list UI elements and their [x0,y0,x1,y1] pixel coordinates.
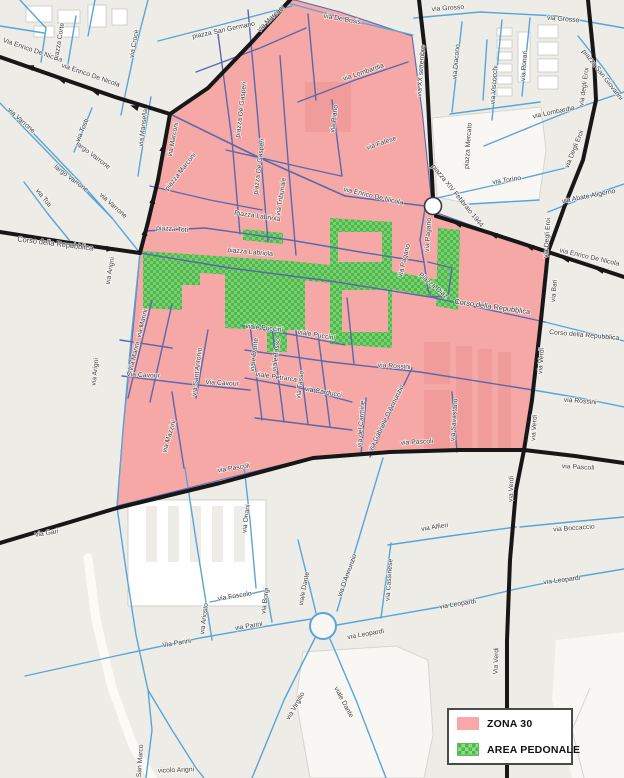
street-label: piazza Corte [53,22,67,61]
legend-item-area-pedonale: AREA PEDONALE [457,743,563,756]
street-label: via Verdi [537,347,546,374]
map-page: { "legend": { "items": [ {"label": "ZONA… [0,0,624,778]
street-label: via Varrone [98,192,128,220]
street-label: via Viscocchi [490,65,500,105]
zona30-swatch-icon [457,717,479,730]
street-label: via Varrone [6,107,36,135]
street-label: vicolo Arigni [158,766,195,774]
map-svg: Via Enrico De Nicolavia Enrico De Nicola… [0,0,624,778]
street-label: via Enrico De Nicola [60,62,120,89]
building [538,42,558,55]
building [497,64,512,72]
street-label: via Grosso [547,15,580,25]
street-label: via Grosso [431,4,464,13]
building [497,76,512,84]
street-label: via Leopardi [543,575,581,587]
street-label: Corso della Repubblica [549,329,620,342]
courtyard [212,506,223,562]
courtyard [146,506,157,562]
street-label: largo Varrone [75,141,112,171]
street-label: via Leopardi [439,598,477,611]
legend-label-zona30: ZONA 30 [487,718,532,730]
street-label: via Mansella [138,108,150,147]
building-pink [478,349,492,448]
street-label: via Pascoli [562,463,595,472]
street-label: via Alfieri [421,522,449,533]
street-label: via Leopardi [347,628,385,641]
road-minor [483,40,487,100]
street-label: viale Dante [298,571,311,606]
street-label: Via Verdi [493,647,501,675]
building [497,88,512,96]
courtyard [168,506,179,562]
building [538,76,558,89]
building [538,25,558,38]
building [58,10,80,23]
building-pink [338,232,382,262]
street-label: via Diacono [451,44,461,80]
building-pink [498,352,511,448]
oneway-arrow-icon [106,246,115,253]
road-via-toti [24,182,70,241]
street-label: via Verdi [508,475,516,502]
roundabout-sud [310,613,336,639]
legend-item-zona30: ZONA 30 [457,717,563,730]
street-label: largo Varrone [53,164,90,194]
street-label: via Cassinese [385,558,395,601]
building [497,28,512,36]
roundabout-piazza-xiv-febbraio [425,198,442,215]
street-label: via Arigni [105,256,117,285]
road-via-alfieri [388,527,516,545]
road-via-leopardi [337,569,624,625]
building-pink [456,346,472,448]
road-vicolo-arigni [148,690,204,778]
map-canvas: Via Enrico De Nicolavia Enrico De Nicola… [0,0,624,778]
block-field-south [296,646,433,778]
street-label: via Croce [129,29,141,59]
building-pink [424,342,450,384]
building [112,9,127,25]
street-label: via Verdi [530,414,539,441]
map-legend: ZONA 30 AREA PEDONALE [447,708,573,765]
street-label: via Tosti [75,117,91,143]
street-label: Corso della Repubblica [17,234,95,252]
area-pedonale-swatch-icon [457,743,479,756]
road-via-pascoli-gari [0,450,624,543]
street-label: via Bari [550,279,559,303]
building [538,59,558,72]
street-label: via Parini [234,621,263,632]
street-label: via D'Annunzio [337,553,359,598]
building-pink [305,82,351,132]
street-label: via degli Eroi [578,67,590,107]
street-label: via Arigni [91,357,101,386]
street-label: Via Parini [162,638,192,650]
street-label: via Rossini [563,397,597,407]
street-label: via Boccaccio [553,524,595,534]
legend-label-area-pedonale: AREA PEDONALE [487,744,580,756]
